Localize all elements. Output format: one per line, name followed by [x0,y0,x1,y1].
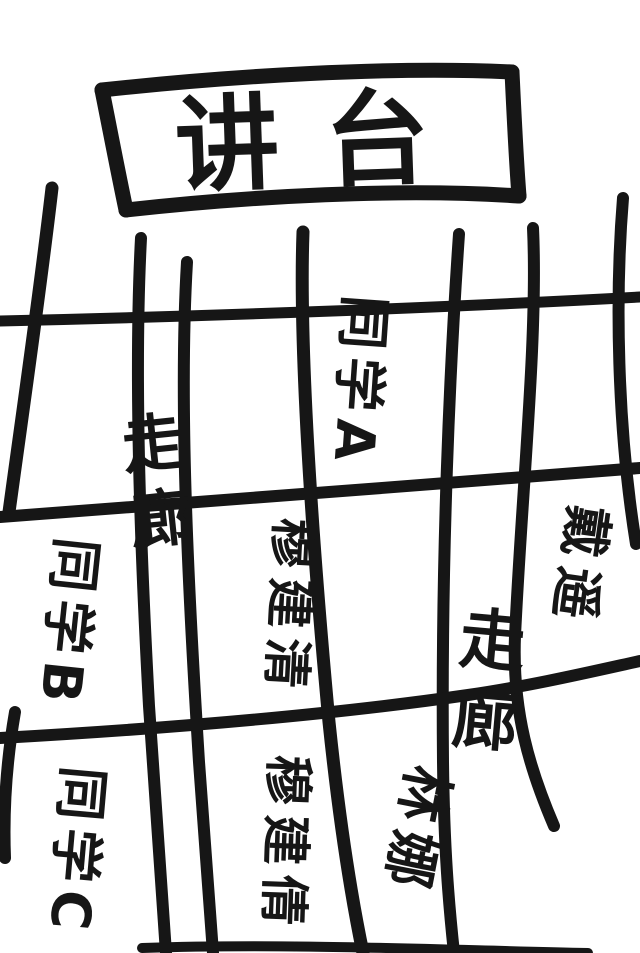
podium-box-right [512,72,519,196]
seat-label-mu-jianqian: 穆建倩 [256,754,315,936]
grid-hline-1 [0,297,640,321]
grid-vline-2 [138,238,166,953]
podium-label: 讲台 [173,82,477,202]
corridor-label-right: 走廊 [442,602,525,767]
seat-label-classmate-a: 同学A [324,293,393,470]
corridor-label-left: 走廊 [112,408,193,566]
seat-label-classmate-c: 同学C [39,764,110,940]
grid-vline-1 [9,188,52,512]
grid-vline-6 [515,228,554,826]
grid-vline-7 [619,198,636,544]
seat-label-mu-jianqing1: 穆建清 [258,517,320,700]
handdrawn-seating-chart: 讲台 同学A 走廊 同学B 穆建清 戴遥 走廊 林娜 穆建倩 同学C [0,0,640,953]
podium-box-left [102,90,126,210]
grid-hline-2 [0,468,640,517]
grid-vline-3 [184,262,213,953]
